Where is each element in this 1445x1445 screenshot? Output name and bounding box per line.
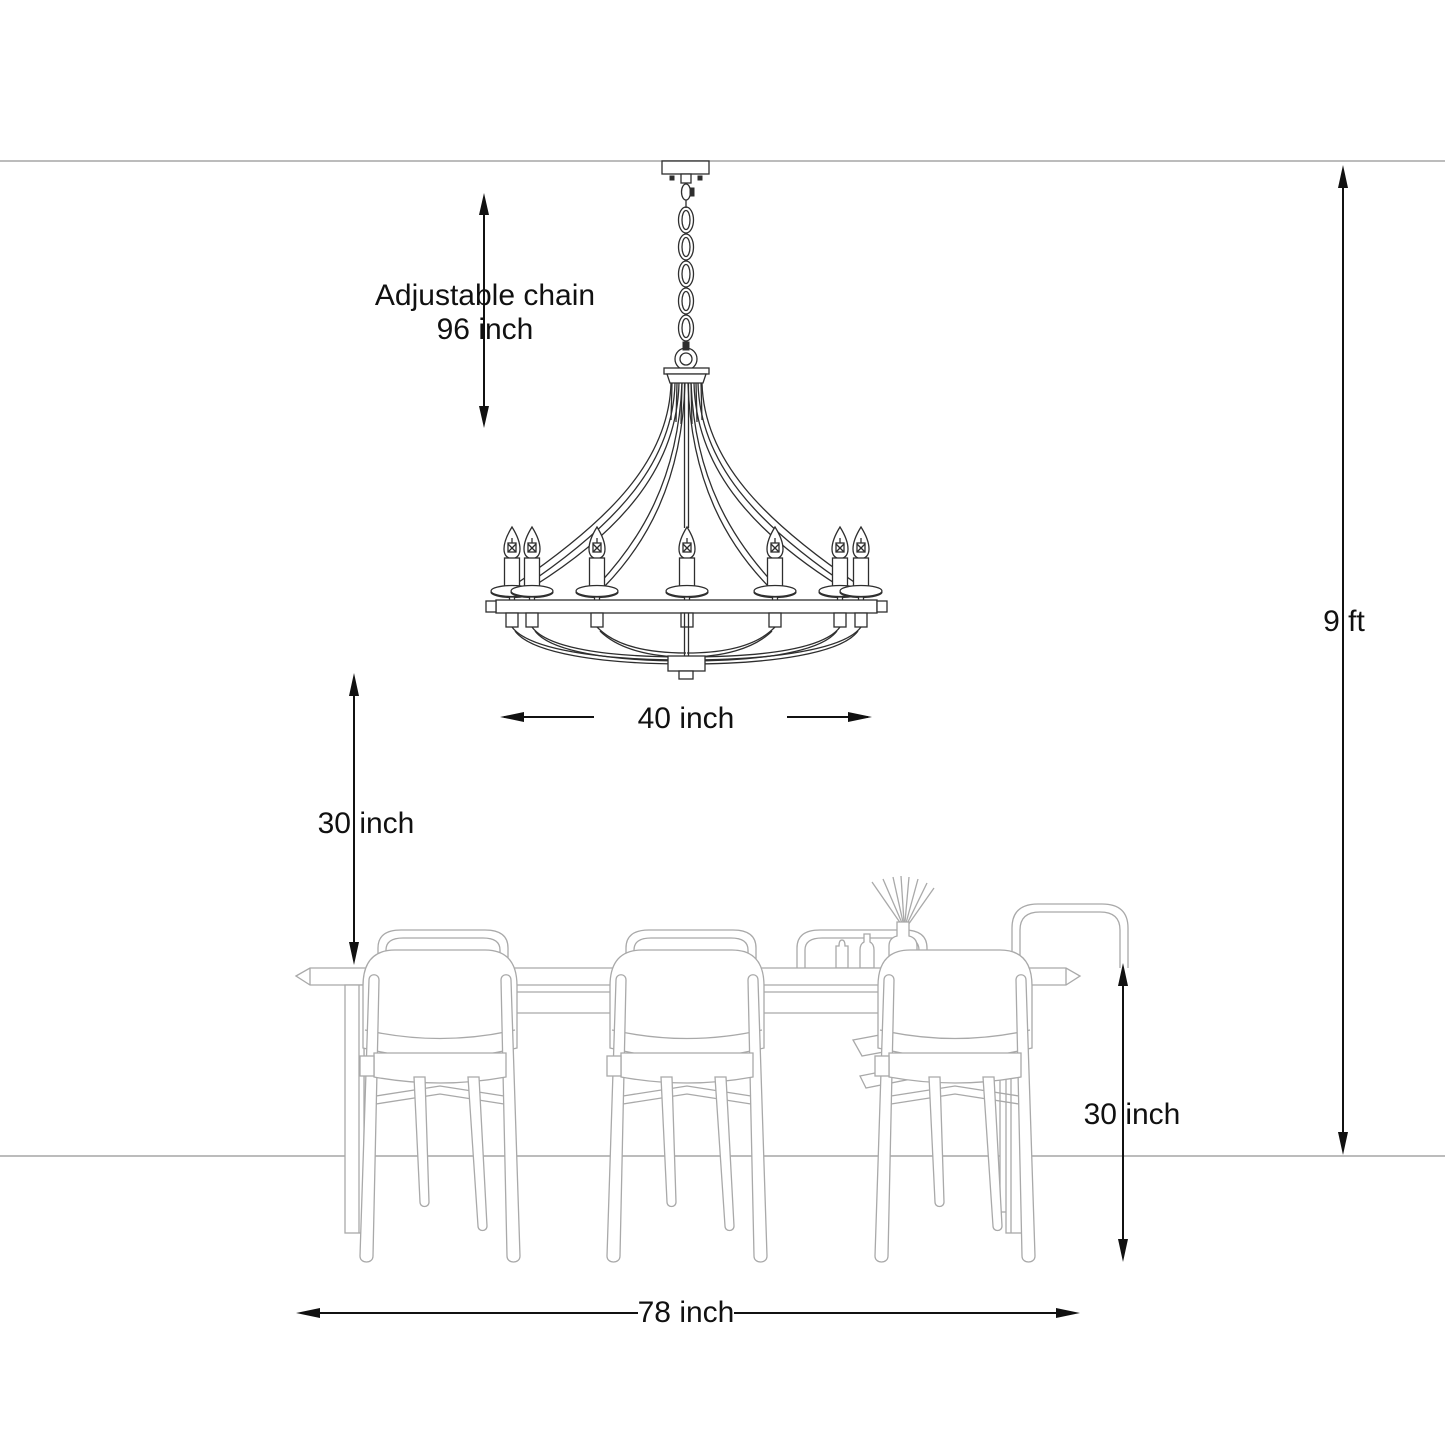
dimension-annotations: Adjustable chain 96 inch 40 inch 9 ft 30… [296, 165, 1366, 1329]
dimension-diagram: Adjustable chain 96 inch 40 inch 9 ft 30… [0, 0, 1445, 1445]
fixture-width-label: 40 inch [638, 702, 735, 735]
chain [679, 207, 694, 350]
ring-bar [486, 600, 887, 627]
dim-ceiling-height [1338, 165, 1348, 1155]
chain-label-line2: 96 inch [437, 313, 534, 346]
dining-set [296, 876, 1128, 1262]
ceiling-canopy [662, 161, 709, 174]
dining-chair [360, 950, 520, 1262]
dining-chair [607, 950, 767, 1262]
decor-bottles [836, 934, 874, 968]
table-length-label: 78 inch [638, 1296, 735, 1329]
table-height-label: 30 inch [1084, 1098, 1181, 1131]
ceiling-height-label: 9 ft [1323, 605, 1365, 638]
hang-ring [675, 348, 697, 370]
chandelier [486, 161, 887, 679]
chain-label-line1: Adjustable chain [375, 279, 595, 312]
clearance-label: 30 inch [318, 807, 415, 840]
candles [491, 527, 882, 604]
back-chair [1012, 904, 1128, 968]
table-leg [345, 985, 364, 1233]
arm-bundle [671, 383, 702, 424]
bottom-finial [668, 656, 705, 671]
